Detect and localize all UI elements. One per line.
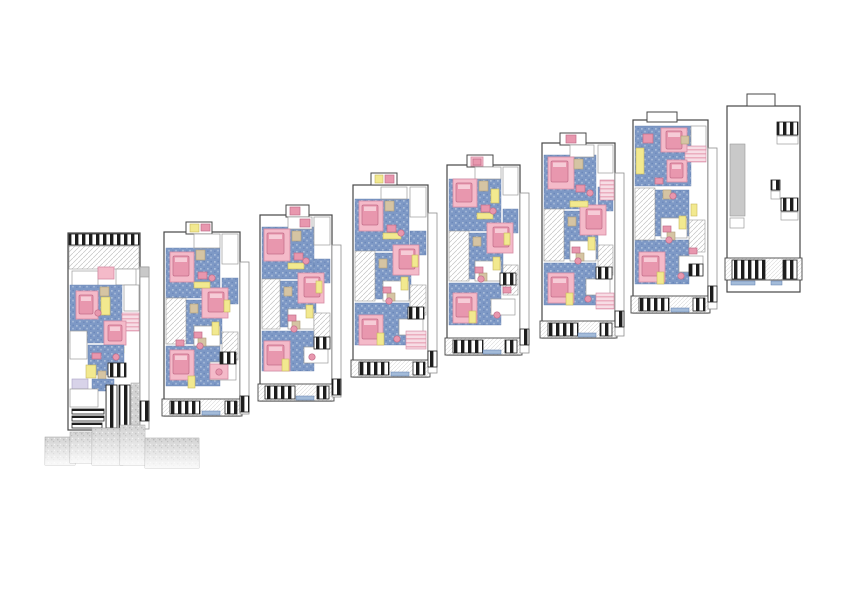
plans-canvas [0, 0, 850, 593]
plan-3 [258, 205, 341, 401]
plan-8 [725, 94, 802, 292]
plan-2 [162, 222, 249, 416]
plan-7 [631, 112, 717, 313]
plan-5 [445, 155, 529, 355]
plan-6 [540, 133, 624, 338]
plan-4 [351, 173, 437, 377]
floor-plan-series [0, 0, 850, 593]
